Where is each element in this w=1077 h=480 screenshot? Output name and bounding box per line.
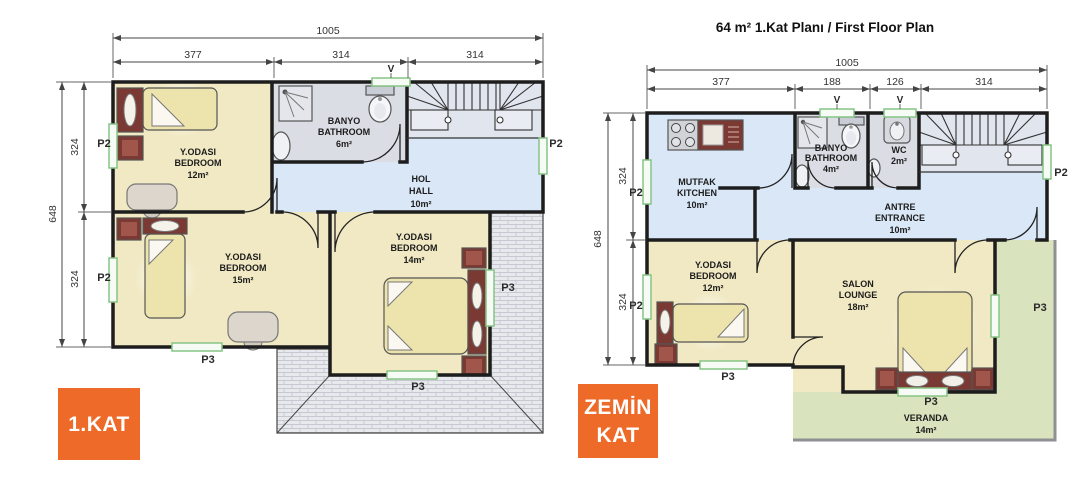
- plan-title: 64 m² 1.Kat Planı / First Floor Plan: [716, 20, 934, 35]
- floor-badge-first: 1.KAT: [58, 388, 140, 460]
- window-p2: [539, 138, 547, 174]
- marker-p3: P3: [411, 381, 424, 393]
- dim-label: 324: [69, 270, 81, 288]
- room-label: Y.ODASI: [695, 260, 731, 270]
- marker-p3: P3: [924, 396, 937, 408]
- marker-p2: P2: [1054, 167, 1067, 179]
- marker-p2: P2: [97, 272, 110, 284]
- floorplan-page: P2 P2 P2 P3 P3 P3 V Y.ODASI BEDROOM 12m²…: [0, 0, 1077, 480]
- room-label: 6m²: [336, 139, 352, 149]
- room-label: BANYO: [328, 116, 361, 126]
- dim-label: 126: [886, 76, 904, 88]
- room-label: 15m²: [232, 275, 253, 285]
- marker-p3: P3: [201, 354, 214, 366]
- sink-icon-wc: [868, 159, 880, 177]
- room-label: Y.ODASI: [225, 252, 261, 262]
- room-label: WC: [892, 145, 907, 155]
- room-label: 14m²: [915, 425, 936, 435]
- room-label: BATHROOM: [318, 127, 370, 137]
- dim-label: 188: [823, 76, 841, 88]
- room-label: BATHROOM: [805, 153, 857, 163]
- marker-p2: P2: [97, 138, 110, 150]
- badge-label: 1.KAT: [68, 413, 130, 436]
- room-label: 2m²: [891, 156, 907, 166]
- room-label: 14m²: [403, 255, 424, 265]
- room-label: SALON: [842, 279, 874, 289]
- badge-label: KAT: [596, 424, 639, 447]
- window-vent: [372, 78, 410, 86]
- window-vent: [884, 109, 916, 117]
- room-label: BEDROOM: [175, 158, 222, 168]
- room-label: ANTRE: [885, 202, 916, 212]
- dim-label: 377: [184, 49, 202, 61]
- window-p3: [700, 361, 747, 369]
- window-p3: [898, 388, 947, 396]
- window-vent: [820, 109, 854, 117]
- room-label: Y.ODASI: [396, 232, 432, 242]
- sink-icon-bathroom-right: [795, 165, 809, 187]
- dim-label: 314: [466, 49, 484, 61]
- dim-label: 377: [712, 76, 730, 88]
- room-label: MUTFAK: [678, 177, 716, 187]
- floor-badge-ground: ZEMİN KAT: [578, 384, 658, 458]
- window-p3: [387, 371, 437, 379]
- dim-label: 314: [332, 49, 350, 61]
- room-label: 4m²: [823, 164, 839, 174]
- dim-label: 1005: [316, 25, 340, 37]
- room-label: HOL: [412, 174, 432, 184]
- room-label: LOUNGE: [839, 290, 878, 300]
- room-label: 10m²: [889, 225, 910, 235]
- room-label: BEDROOM: [391, 243, 438, 253]
- marker-p2: P2: [549, 138, 562, 150]
- toilet-icon-wc: [884, 116, 910, 143]
- dim-label: 314: [975, 76, 993, 88]
- room-label: 18m²: [847, 302, 868, 312]
- room-label: KITCHEN: [677, 188, 717, 198]
- marker-p3: P3: [721, 371, 734, 383]
- window-p3: [172, 343, 222, 351]
- room-label: 10m²: [410, 199, 431, 209]
- marker-p3: P3: [1033, 302, 1046, 314]
- window-p3: [486, 270, 494, 326]
- dim-label: 324: [617, 167, 629, 185]
- room-label: BANYO: [815, 143, 848, 153]
- window-p3: [991, 295, 999, 337]
- room-label: ENTRANCE: [875, 213, 925, 223]
- room-label: HALL: [409, 186, 433, 196]
- room-label: Y.ODASI: [180, 147, 216, 157]
- floorplan-canvas: P2 P2 P2 P3 P3 P3 V Y.ODASI BEDROOM 12m²…: [0, 0, 1077, 480]
- window-p2: [643, 275, 651, 319]
- shower-icon-left: [279, 86, 312, 121]
- dim-label: 648: [47, 205, 59, 223]
- room-label: 12m²: [702, 283, 723, 293]
- marker-p2: P2: [629, 300, 642, 312]
- room-label: BEDROOM: [220, 263, 267, 273]
- dim-label: 324: [617, 293, 629, 311]
- window-p2: [1043, 145, 1051, 179]
- dim-label: 648: [592, 230, 604, 248]
- badge-label: ZEMİN: [584, 396, 652, 419]
- room-label: 10m²: [686, 200, 707, 210]
- marker-p3: P3: [501, 282, 514, 294]
- room-label: BEDROOM: [690, 271, 737, 281]
- room-label: VERANDA: [904, 413, 949, 423]
- marker-p2: P2: [629, 187, 642, 199]
- sink-icon-left: [272, 132, 290, 160]
- window-p2: [643, 160, 651, 204]
- dim-label: 1005: [835, 57, 859, 69]
- dim-label: 324: [69, 138, 81, 156]
- stove-icon: [668, 120, 743, 150]
- room-label: 12m²: [187, 170, 208, 180]
- left-plan: P2 P2 P2 P3 P3 P3 V Y.ODASI BEDROOM 12m²…: [47, 25, 563, 460]
